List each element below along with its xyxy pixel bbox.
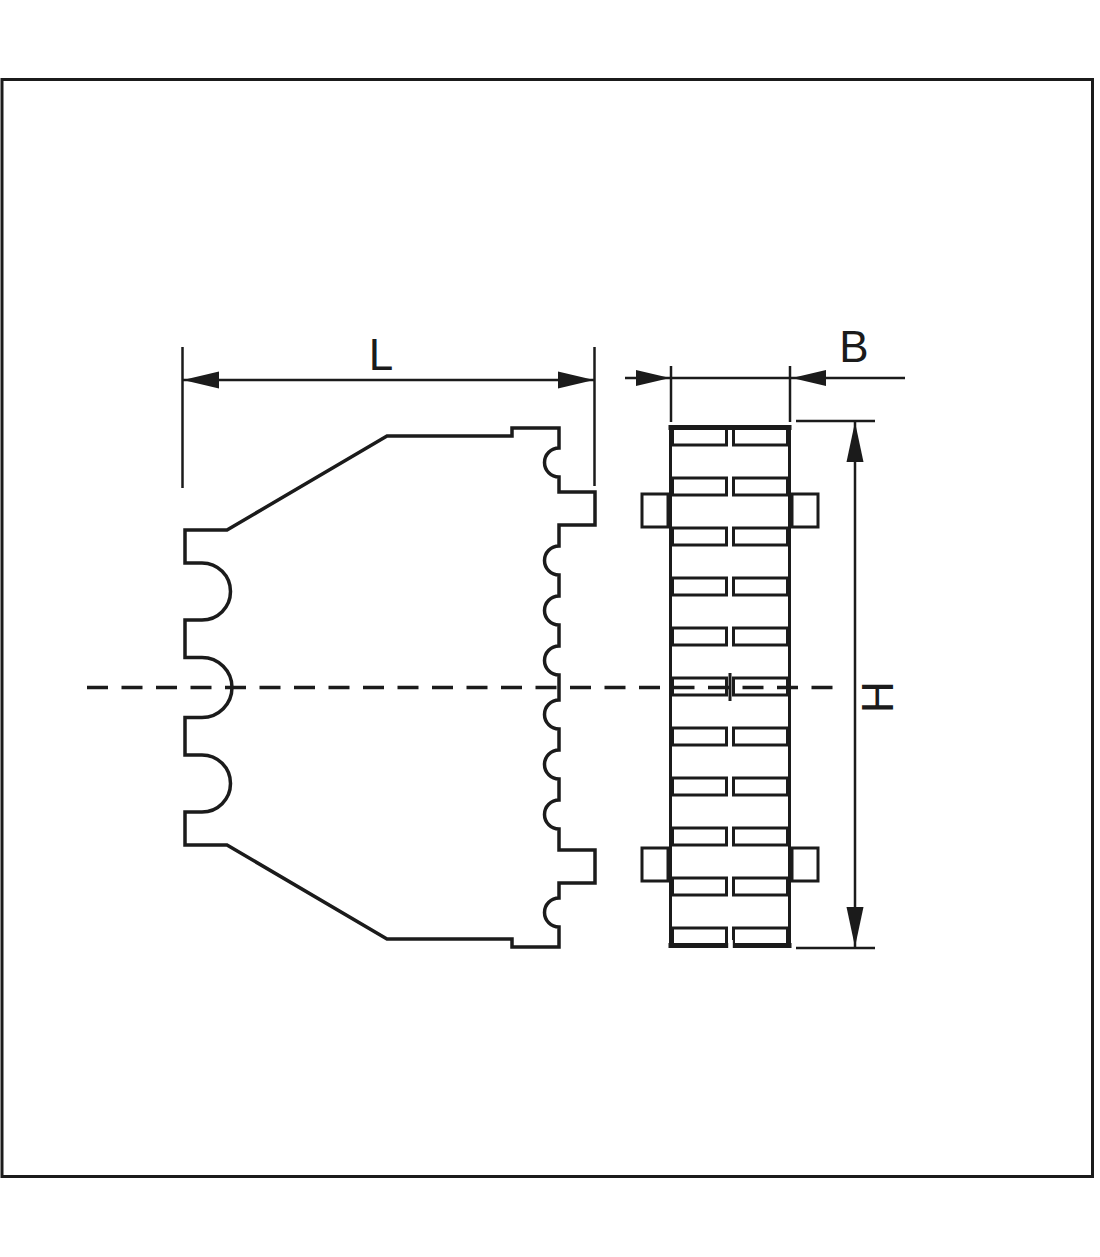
height-arrow-bottom xyxy=(847,907,864,947)
serration-tooth xyxy=(734,928,788,945)
serration-tooth xyxy=(734,478,788,495)
serration-tooth xyxy=(673,478,727,495)
serration-tooth xyxy=(673,928,727,945)
serration-tooth xyxy=(673,878,727,895)
height-arrow-top xyxy=(847,422,864,462)
drawing-frame xyxy=(2,80,1093,1177)
height-label: H xyxy=(853,681,902,713)
bottom-center-notch xyxy=(728,940,733,951)
length-arrow-left xyxy=(183,372,219,389)
serration-tooth xyxy=(673,578,727,595)
serration-tooth xyxy=(734,428,788,445)
serration-tooth xyxy=(734,528,788,545)
dimension-height: H xyxy=(796,421,902,948)
drawing-page: L B H xyxy=(0,0,1100,1257)
serration-tooth xyxy=(673,778,727,795)
serration-tooth xyxy=(673,828,727,845)
serration-tooth xyxy=(734,778,788,795)
serration-tooth xyxy=(734,828,788,845)
serration-tooth xyxy=(734,628,788,645)
serration-tooth xyxy=(673,628,727,645)
serration-tooth xyxy=(673,528,727,545)
width-arrow-left xyxy=(636,370,670,386)
side-tab-top-left xyxy=(642,494,668,527)
technical-drawing: L B H xyxy=(0,0,1100,1257)
side-view-outline xyxy=(185,428,595,947)
side-tab-bottom-right xyxy=(792,848,818,881)
width-arrow-right xyxy=(792,370,826,386)
length-arrow-right xyxy=(558,372,594,389)
side-tab-bottom-left xyxy=(642,848,668,881)
dimension-length: L xyxy=(183,330,595,488)
dimension-width: B xyxy=(625,322,905,422)
serration-tooth xyxy=(734,878,788,895)
side-tab-top-right xyxy=(792,494,818,527)
serration-tooth xyxy=(673,728,727,745)
serration-tooth xyxy=(673,428,727,445)
length-label: L xyxy=(369,330,393,379)
serration-tooth xyxy=(734,728,788,745)
serration-tooth xyxy=(734,578,788,595)
width-label: B xyxy=(839,322,868,371)
